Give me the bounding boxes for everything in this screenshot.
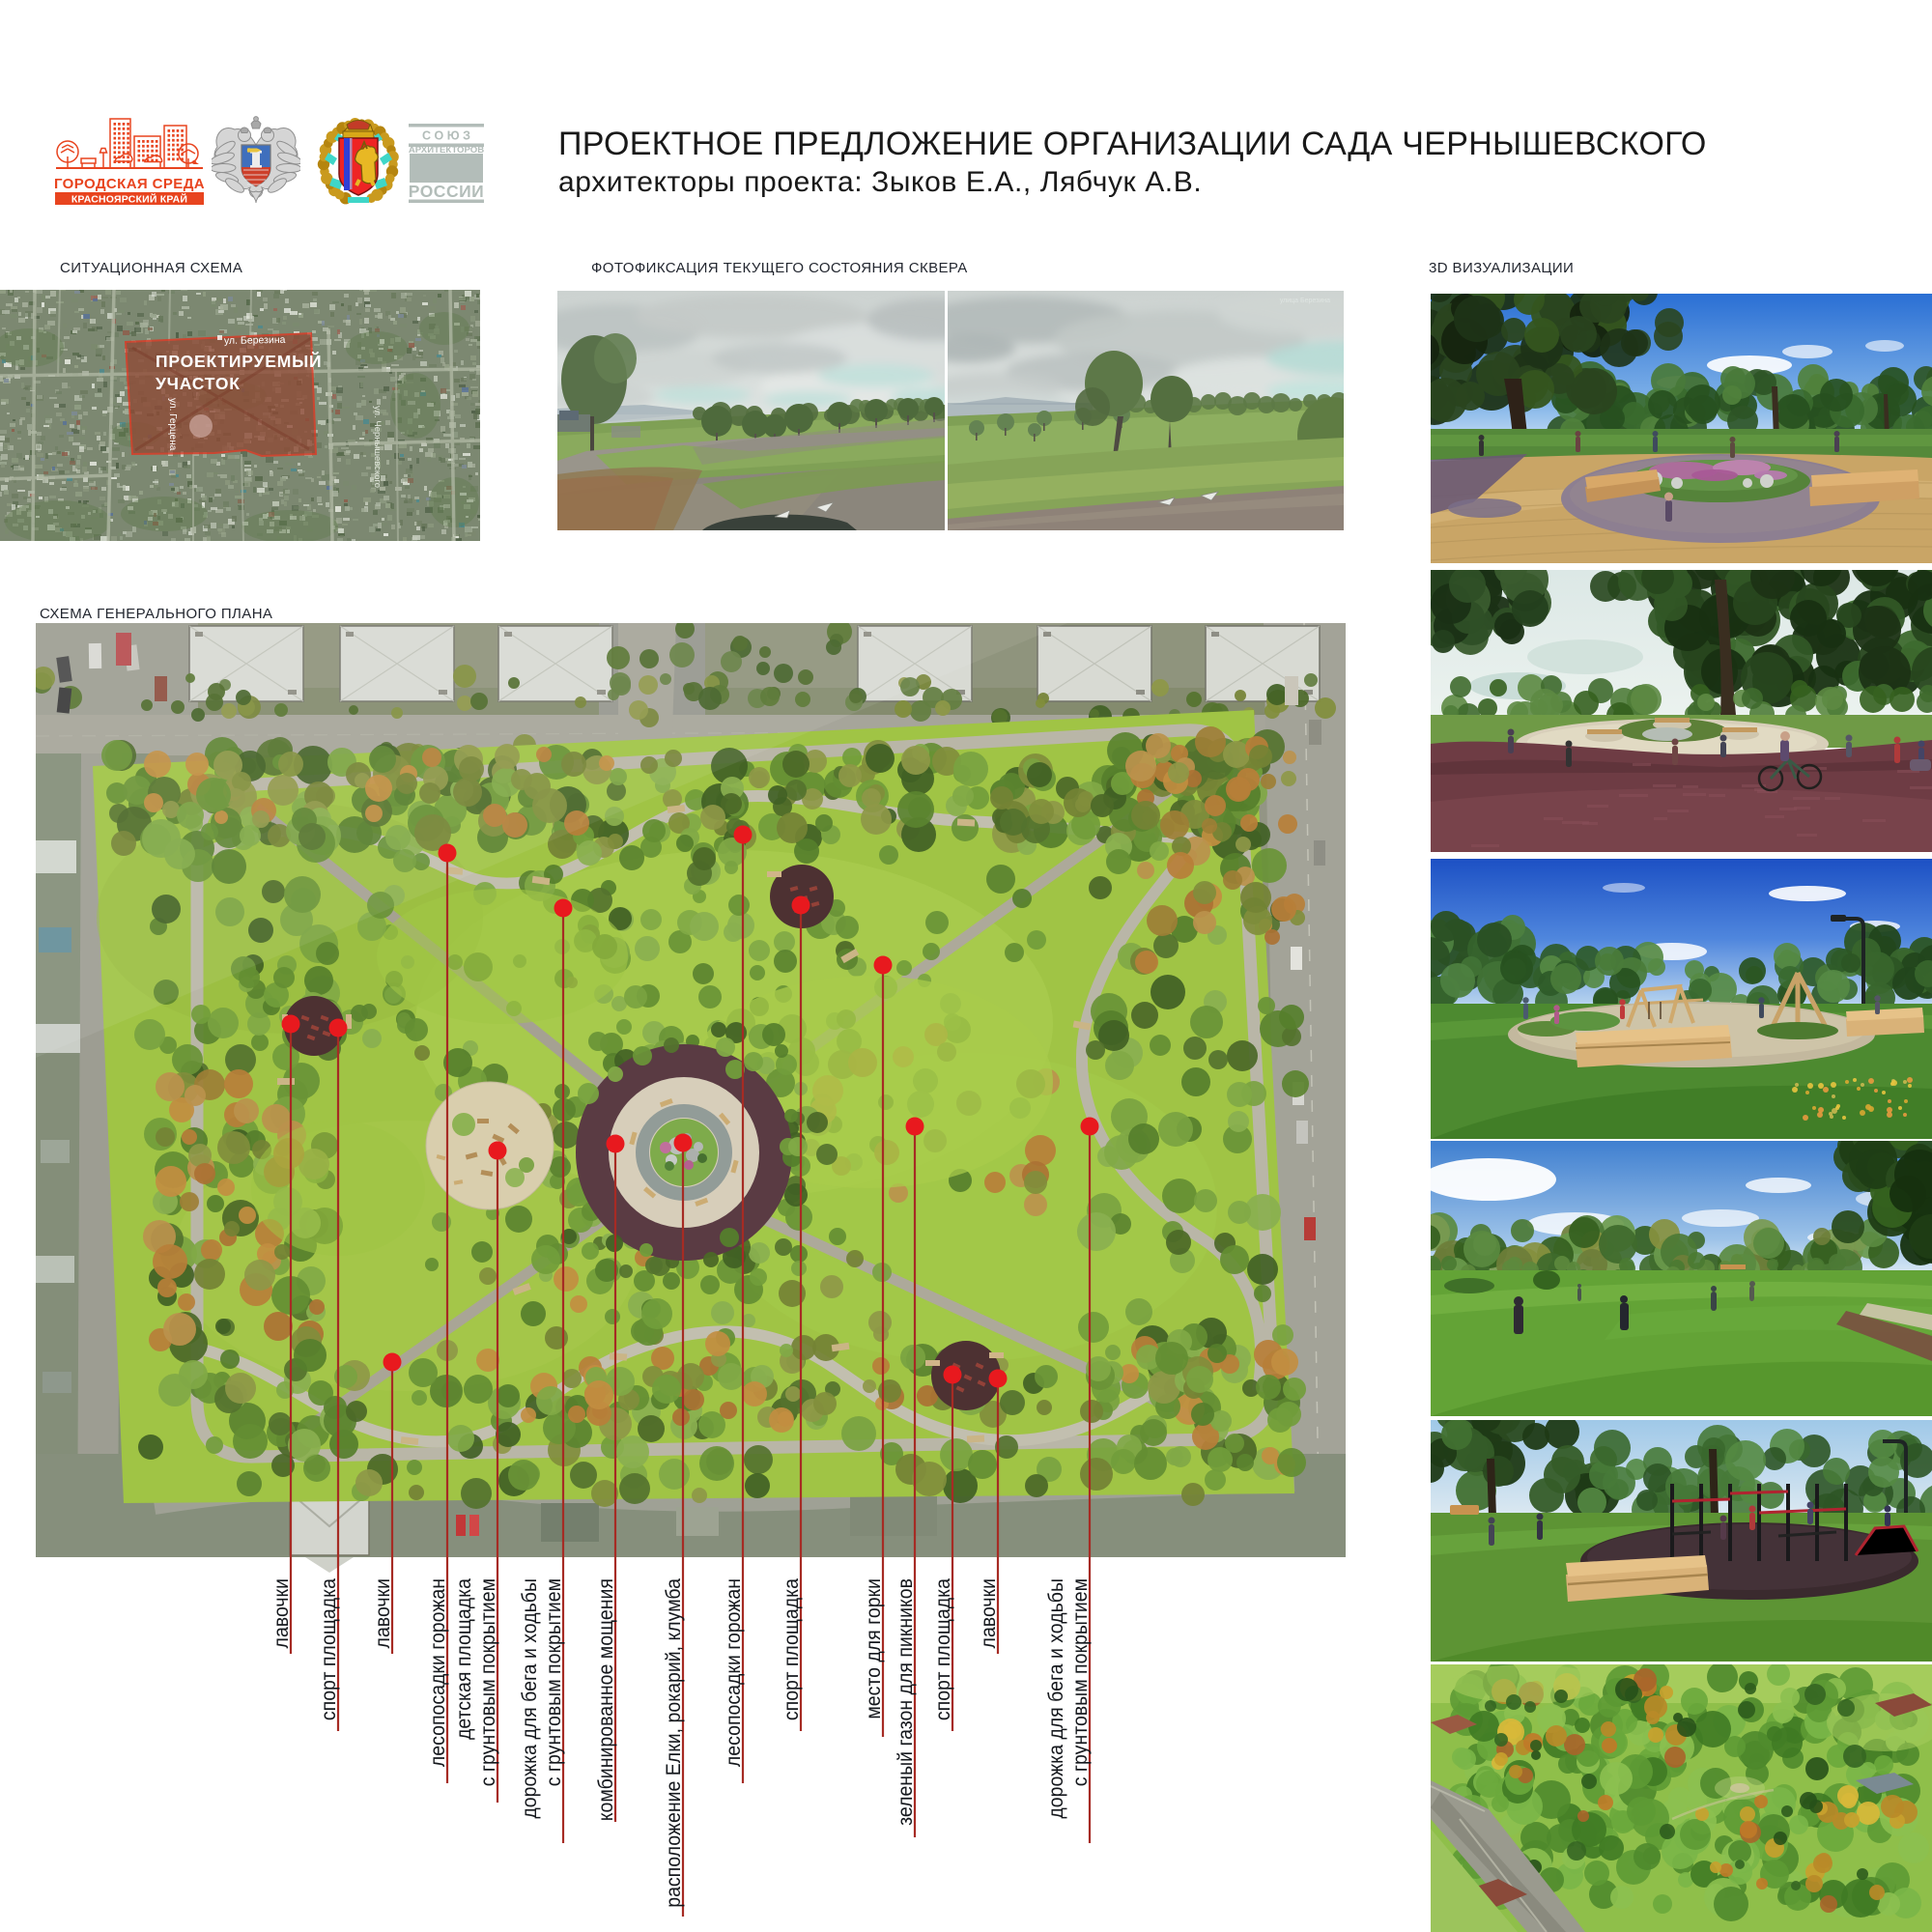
svg-text:УЧАСТОК: УЧАСТОК xyxy=(156,374,241,393)
svg-text:улица Березина: улица Березина xyxy=(1280,298,1330,304)
svg-text:АРХИТЕКТОРОВ: АРХИТЕКТОРОВ xyxy=(409,145,484,156)
svg-text:лавочки: лавочки xyxy=(270,1578,293,1648)
svg-text:спорт площадка: спорт площадка xyxy=(318,1577,340,1720)
svg-text:расположение Елки, рокарий, кл: расположение Елки, рокарий, клумба xyxy=(663,1577,685,1907)
svg-text:РОССИИ: РОССИИ xyxy=(409,182,484,201)
svg-text:КРАСНОЯРСКИЙ КРАЙ: КРАСНОЯРСКИЙ КРАЙ xyxy=(71,193,187,206)
svg-text:лесопосадки горожан: лесопосадки горожан xyxy=(723,1578,745,1767)
svg-text:ул. Березина: ул. Березина xyxy=(224,334,286,347)
svg-text:спорт площадка: спорт площадка xyxy=(932,1577,954,1720)
svg-text:ПРОЕКТИРУЕМЫЙ: ПРОЕКТИРУЕМЫЙ xyxy=(156,351,322,371)
svg-text:лавочки: лавочки xyxy=(978,1578,1000,1648)
svg-text:комбинированное мощения: комбинированное мощения xyxy=(595,1578,617,1821)
svg-text:ул. Герцена: ул. Герцена xyxy=(167,398,178,451)
svg-text:с грунтовым покрытием: с грунтовым покрытием xyxy=(543,1578,565,1786)
svg-text:детская площадка: детская площадка xyxy=(453,1577,475,1740)
svg-text:С О Ю З: С О Ю З xyxy=(422,129,470,143)
svg-text:дорожка для бега и ходьбы: дорожка для бега и ходьбы xyxy=(519,1578,541,1819)
svg-text:дорожка для бега и ходьбы: дорожка для бега и ходьбы xyxy=(1045,1578,1067,1819)
svg-text:ул. Чернышевского: ул. Чернышевского xyxy=(372,406,383,488)
svg-text:место для горки: место для горки xyxy=(863,1578,885,1719)
svg-text:зеленый газон для пикников: зеленый газон для пикников xyxy=(895,1578,917,1826)
svg-text:с грунтовым покрытием: с грунтовым покрытием xyxy=(477,1578,499,1786)
svg-text:лавочки: лавочки xyxy=(372,1578,394,1648)
svg-text:с грунтовым покрытием: с грунтовым покрытием xyxy=(1069,1578,1092,1786)
svg-text:лесопосадки горожан: лесопосадки горожан xyxy=(427,1578,449,1767)
svg-text:ГОРОДСКАЯ СРЕДА: ГОРОДСКАЯ СРЕДА xyxy=(55,176,204,192)
svg-text:спорт площадка: спорт площадка xyxy=(781,1577,803,1720)
